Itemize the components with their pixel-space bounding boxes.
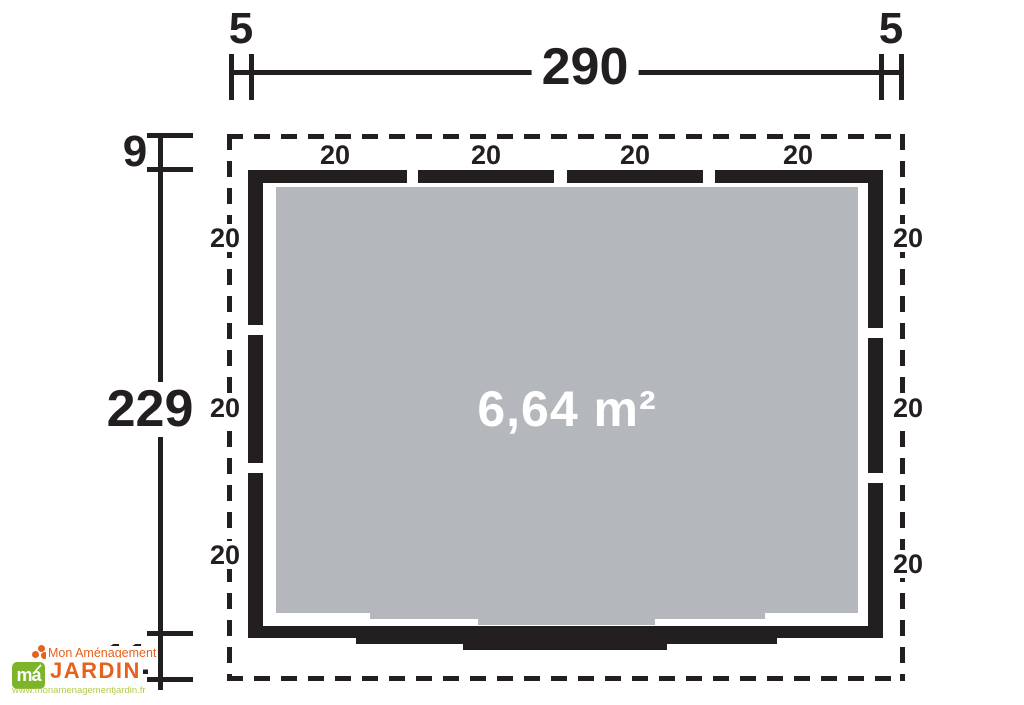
dim-top-width: 290 — [532, 40, 639, 95]
wall-top-segment-3 — [567, 170, 703, 183]
wall-left-segment-2 — [248, 335, 263, 463]
dim-top-right-offset: 5 — [879, 6, 903, 52]
leaf-icon — [33, 664, 42, 674]
seg-label-left-3: 20 — [206, 541, 244, 569]
wall-left-segment-1 — [248, 170, 263, 325]
roof-outline-top — [227, 134, 905, 139]
dim-width-tick-right-inner — [879, 54, 884, 100]
seg-label-left-1: 20 — [206, 224, 244, 252]
seg-label-top-3: 20 — [616, 141, 654, 169]
wall-top-segment-4 — [715, 170, 883, 183]
seg-label-top-4: 20 — [779, 141, 817, 169]
dim-width-tick-left-inner — [249, 54, 254, 100]
shed-floor-plan: 6,64 m² 5 290 5 9 229 11 20 20 20 20 20 … — [0, 0, 1024, 705]
seg-label-top-2: 20 — [467, 141, 505, 169]
wall-top-segment-1 — [248, 170, 407, 183]
wall-right-segment-3 — [868, 483, 883, 638]
brand-logo: Mon Aménagement ma JARDIN www.monamenage… — [10, 643, 160, 701]
logo-brand-main: JARDIN — [48, 658, 143, 684]
wall-left-segment-3 — [248, 473, 263, 638]
wall-right-segment-2 — [868, 338, 883, 473]
roof-outline-bottom — [227, 676, 905, 681]
dim-depth-tick-2 — [147, 167, 193, 172]
floor-area-step-center — [478, 610, 655, 625]
seg-label-right-3: 20 — [889, 550, 927, 578]
seg-label-right-2: 20 — [889, 394, 927, 422]
dim-left-height: 229 — [97, 382, 204, 437]
dim-left-top-offset: 9 — [123, 129, 147, 175]
dim-top-left-offset: 5 — [229, 6, 253, 52]
logo-website: www.monamenagementjardin.fr — [12, 685, 146, 696]
dim-width-tick-right-outer — [899, 54, 904, 100]
floor-area-label: 6,64 m² — [276, 383, 858, 436]
wall-top-segment-2 — [418, 170, 554, 183]
seg-label-right-1: 20 — [889, 224, 927, 252]
wall-bottom-step-center — [463, 638, 667, 650]
dim-depth-tick-3 — [147, 631, 193, 636]
seg-label-left-2: 20 — [206, 394, 244, 422]
dim-depth-tick-1 — [147, 133, 193, 138]
seg-label-top-1: 20 — [316, 141, 354, 169]
dim-width-tick-left-outer — [229, 54, 234, 100]
wall-right-segment-1 — [868, 170, 883, 328]
